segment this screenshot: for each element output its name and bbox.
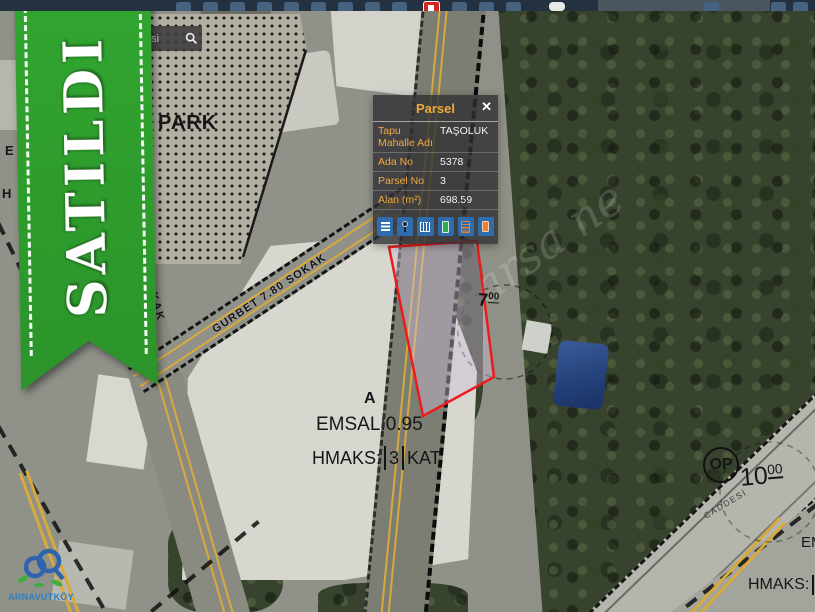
- pushpin-icon: [401, 221, 409, 232]
- op-label: OP: [709, 456, 732, 474]
- road-width-dec: 00: [488, 291, 500, 304]
- document-green-button[interactable]: [438, 217, 454, 236]
- toolbar-button-active[interactable]: [423, 1, 440, 11]
- park-label: PARK: [158, 112, 217, 135]
- popup-header: Parsel ✕: [373, 95, 498, 122]
- toolbar-button[interactable]: [230, 2, 245, 11]
- pool: [553, 340, 610, 411]
- battery-icon: [482, 221, 489, 232]
- toolbar-button[interactable]: [365, 2, 380, 11]
- toolbar-button[interactable]: [506, 2, 521, 11]
- emsal-label: EMSAL:0.95: [316, 414, 423, 436]
- sold-ribbon-text: SATILDI: [52, 33, 119, 318]
- toolbar-button[interactable]: [793, 2, 808, 11]
- op-circle: OP: [703, 447, 739, 483]
- road-width-int: 7: [478, 289, 489, 309]
- popup-row-mahalle: Tapu Mahalle Adı TAŞOLUK: [373, 122, 498, 153]
- row-value: 698.59: [440, 194, 493, 206]
- parcel-info-popup: Parsel ✕ Tapu Mahalle Adı TAŞOLUK Ada No…: [373, 95, 498, 244]
- toolbar-button[interactable]: [311, 2, 326, 11]
- toolbar-button[interactable]: [771, 2, 786, 11]
- row-label: Ada No: [378, 156, 440, 168]
- road-width-label: 1000: [739, 460, 784, 493]
- road-width-label: 700: [477, 289, 499, 311]
- popup-title: Parsel: [416, 101, 455, 116]
- hmaks-label: HMAKS: 3 KAT: [312, 446, 441, 470]
- popup-action-bar: [373, 210, 498, 244]
- toolbar-segment: [598, 0, 770, 11]
- row-label: Tapu Mahalle Adı: [378, 125, 440, 149]
- hmaks-value: 3: [384, 446, 404, 470]
- close-icon[interactable]: ✕: [481, 99, 492, 115]
- row-value: 5378: [440, 156, 493, 168]
- toolbar-button[interactable]: [392, 2, 407, 11]
- pushpin-button[interactable]: [397, 217, 413, 236]
- toolbar-toggle[interactable]: [549, 2, 565, 11]
- toolbar-button[interactable]: [284, 2, 299, 11]
- zone-letter-label: A: [364, 390, 376, 408]
- ribbon-dash-border: [139, 0, 148, 354]
- hmaks-prefix: HMAKS:: [748, 576, 809, 594]
- popup-row-parsel: Parsel No 3: [373, 172, 498, 191]
- menu-lines-button[interactable]: [377, 217, 393, 236]
- row-value: TAŞOLUK: [440, 125, 493, 137]
- row-label: Alan (m²): [378, 194, 440, 206]
- document-orange-icon: [461, 221, 470, 233]
- toolbar-button[interactable]: [338, 2, 353, 11]
- toolbar-button[interactable]: [704, 2, 719, 11]
- search-icon[interactable]: [185, 32, 198, 45]
- road-width-dec: 00: [767, 461, 784, 479]
- top-toolbar: [0, 0, 815, 11]
- battery-button[interactable]: [478, 217, 494, 236]
- sold-ribbon-shape: SATILDI: [14, 0, 157, 401]
- popup-row-ada: Ada No 5378: [373, 153, 498, 172]
- toolbar-button[interactable]: [176, 2, 191, 11]
- clipped-label-em: EM: [801, 534, 815, 551]
- building-button[interactable]: [417, 217, 433, 236]
- toolbar-button[interactable]: [203, 2, 218, 11]
- hmaks-label-2: HMAKS: 3: [748, 575, 815, 595]
- toolbar-button[interactable]: [479, 2, 494, 11]
- clipped-label-h: H: [2, 186, 11, 201]
- hmaks-suffix: KAT: [407, 448, 441, 469]
- ribbon-dash-border: [24, 0, 33, 356]
- map-viewport[interactable]: GURBET 7.80 SOKAK PARK SOKAK A EMSAL:0.9…: [0, 0, 815, 612]
- municipality-logo-icon: [13, 543, 69, 589]
- toolbar-button[interactable]: [257, 2, 272, 11]
- document-orange-button[interactable]: [458, 217, 474, 236]
- building-icon: [420, 222, 430, 232]
- popup-row-alan: Alan (m²) 698.59: [373, 191, 498, 210]
- building-block: [522, 320, 553, 354]
- municipality-logo: ARNAVUTKÖY: [6, 543, 76, 602]
- hmaks-prefix: HMAKS:: [312, 448, 381, 469]
- sold-ribbon: SATILDI: [14, 0, 157, 401]
- row-label: Parsel No: [378, 175, 440, 187]
- menu-lines-icon: [381, 222, 390, 231]
- toolbar-button[interactable]: [452, 2, 467, 11]
- row-value: 3: [440, 175, 493, 187]
- municipality-logo-text: ARNAVUTKÖY: [6, 592, 76, 602]
- clipped-label-e: E: [5, 143, 14, 158]
- document-green-icon: [442, 221, 449, 233]
